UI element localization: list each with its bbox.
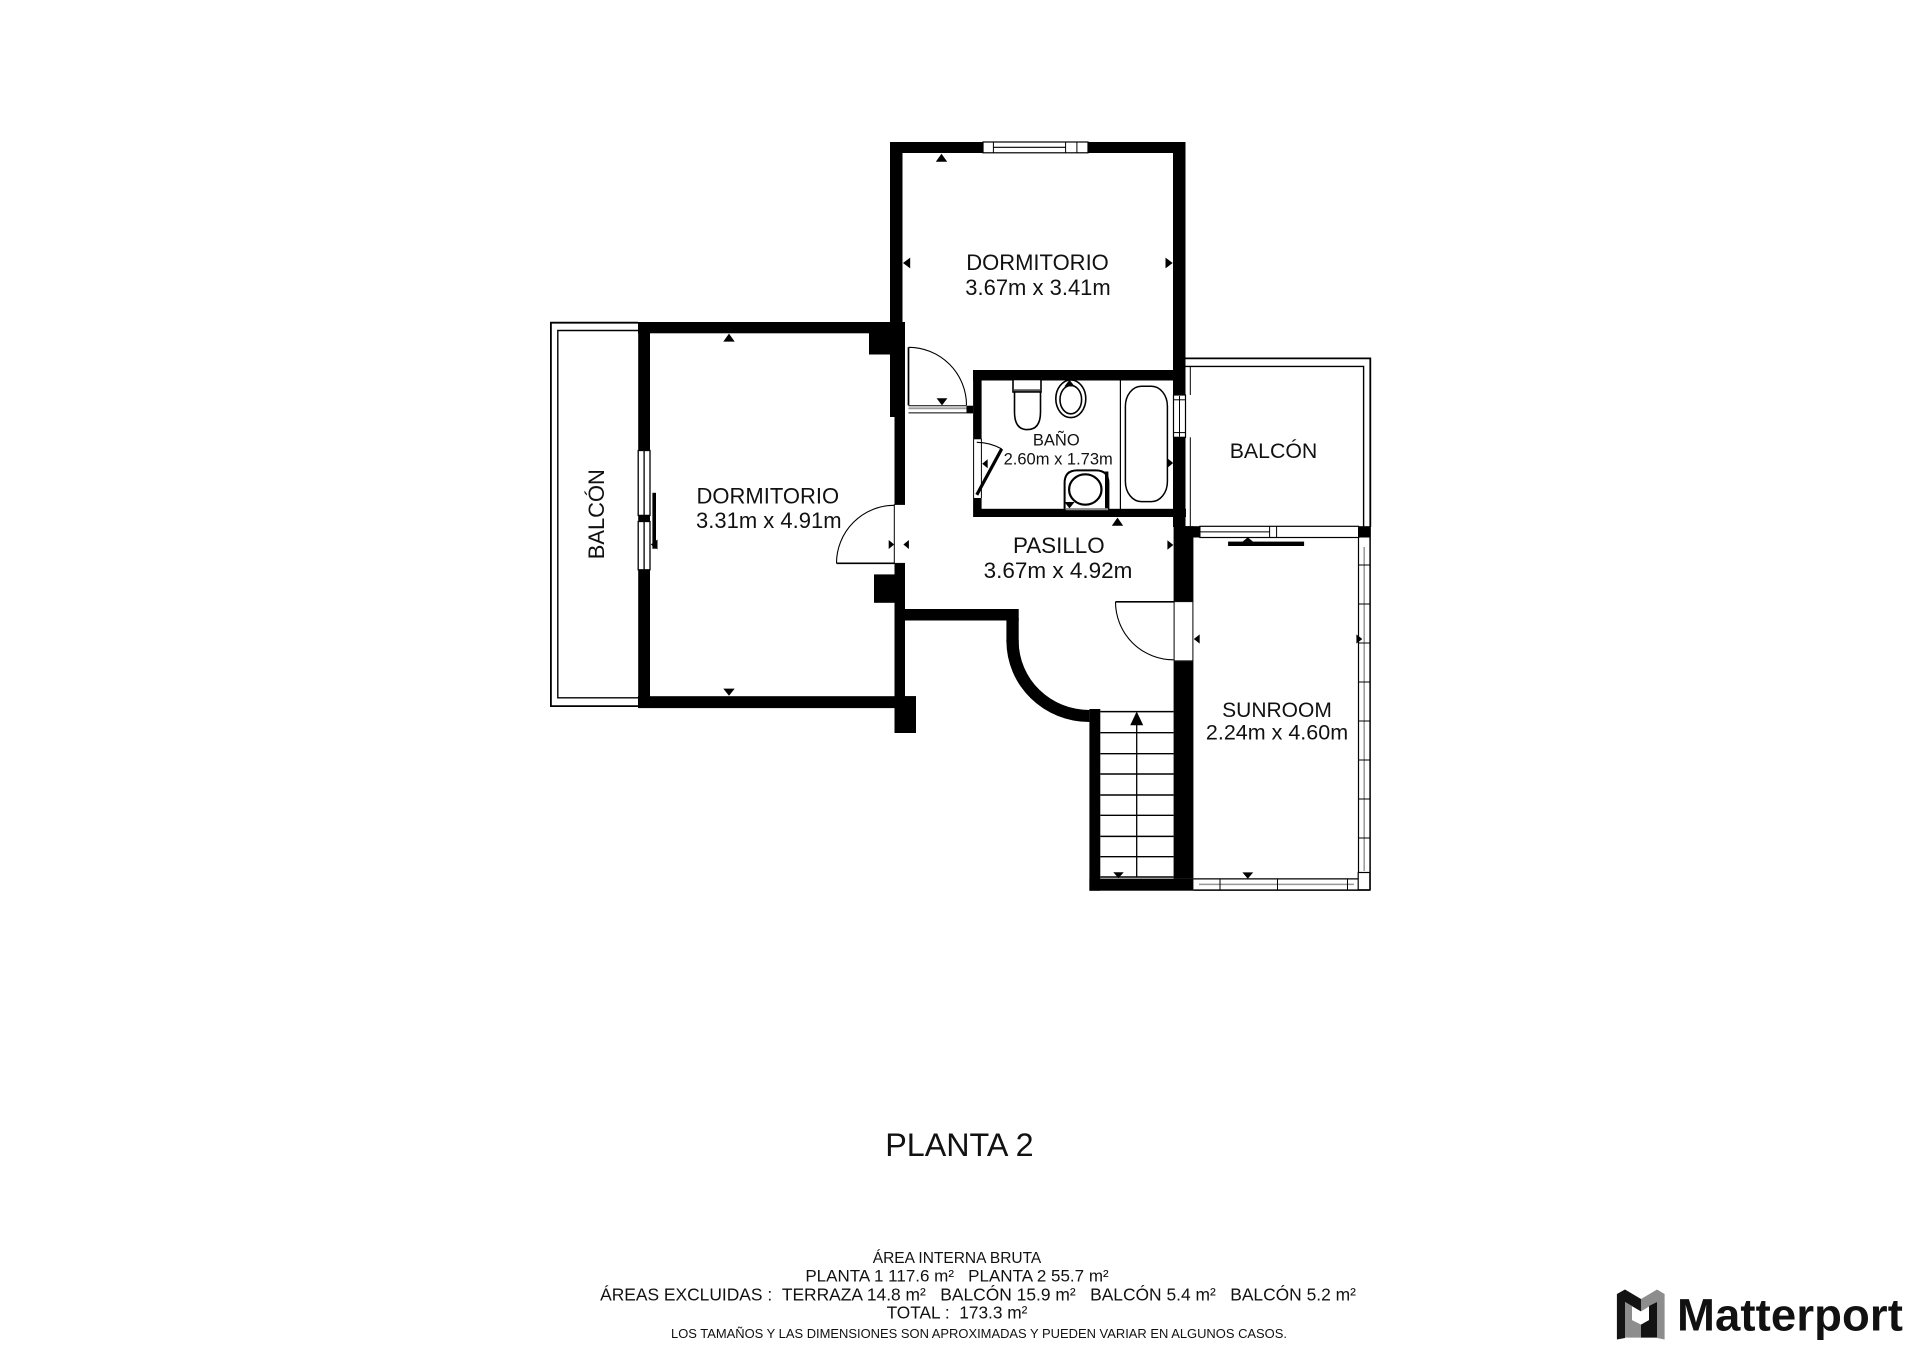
svg-text:LOS TAMAÑOS Y LAS DIMENSIONES: LOS TAMAÑOS Y LAS DIMENSIONES SON APROXI… [671, 1326, 1287, 1341]
svg-text:ÁREA INTERNA BRUTA: ÁREA INTERNA BRUTA [873, 1250, 1042, 1267]
svg-text:2.24m x 4.60m: 2.24m x 4.60m [1206, 720, 1348, 744]
svg-text:3.67m x 4.92m: 3.67m x 4.92m [984, 558, 1133, 583]
svg-text:TOTAL : 173.3 m²: TOTAL : 173.3 m² [887, 1303, 1028, 1323]
svg-text:PASILLO: PASILLO [1013, 533, 1105, 558]
svg-text:2.60m x 1.73m: 2.60m x 1.73m [1004, 451, 1113, 469]
svg-text:DORMITORIO: DORMITORIO [966, 250, 1109, 275]
svg-text:PLANTA 1 117.6 m² PLANTA 2 5: PLANTA 1 117.6 m² PLANTA 2 55.7 m² [805, 1267, 1109, 1286]
svg-text:BALCÓN: BALCÓN [1230, 438, 1318, 463]
svg-text:BALCÓN: BALCÓN [584, 469, 609, 559]
svg-text:DORMITORIO: DORMITORIO [697, 484, 840, 509]
svg-text:SUNROOM: SUNROOM [1222, 699, 1332, 722]
svg-text:3.31m x 4.91m: 3.31m x 4.91m [696, 508, 842, 533]
svg-text:Matterport: Matterport [1677, 1290, 1903, 1341]
svg-text:BAÑO: BAÑO [1033, 429, 1080, 449]
svg-text:3.67m x 3.41m: 3.67m x 3.41m [965, 275, 1111, 300]
svg-text:PLANTA 2: PLANTA 2 [885, 1127, 1033, 1163]
svg-text:ÁREAS EXCLUIDAS : TERRAZA 14.: ÁREAS EXCLUIDAS : TERRAZA 14.8 m² BALCÓN… [600, 1284, 1356, 1304]
